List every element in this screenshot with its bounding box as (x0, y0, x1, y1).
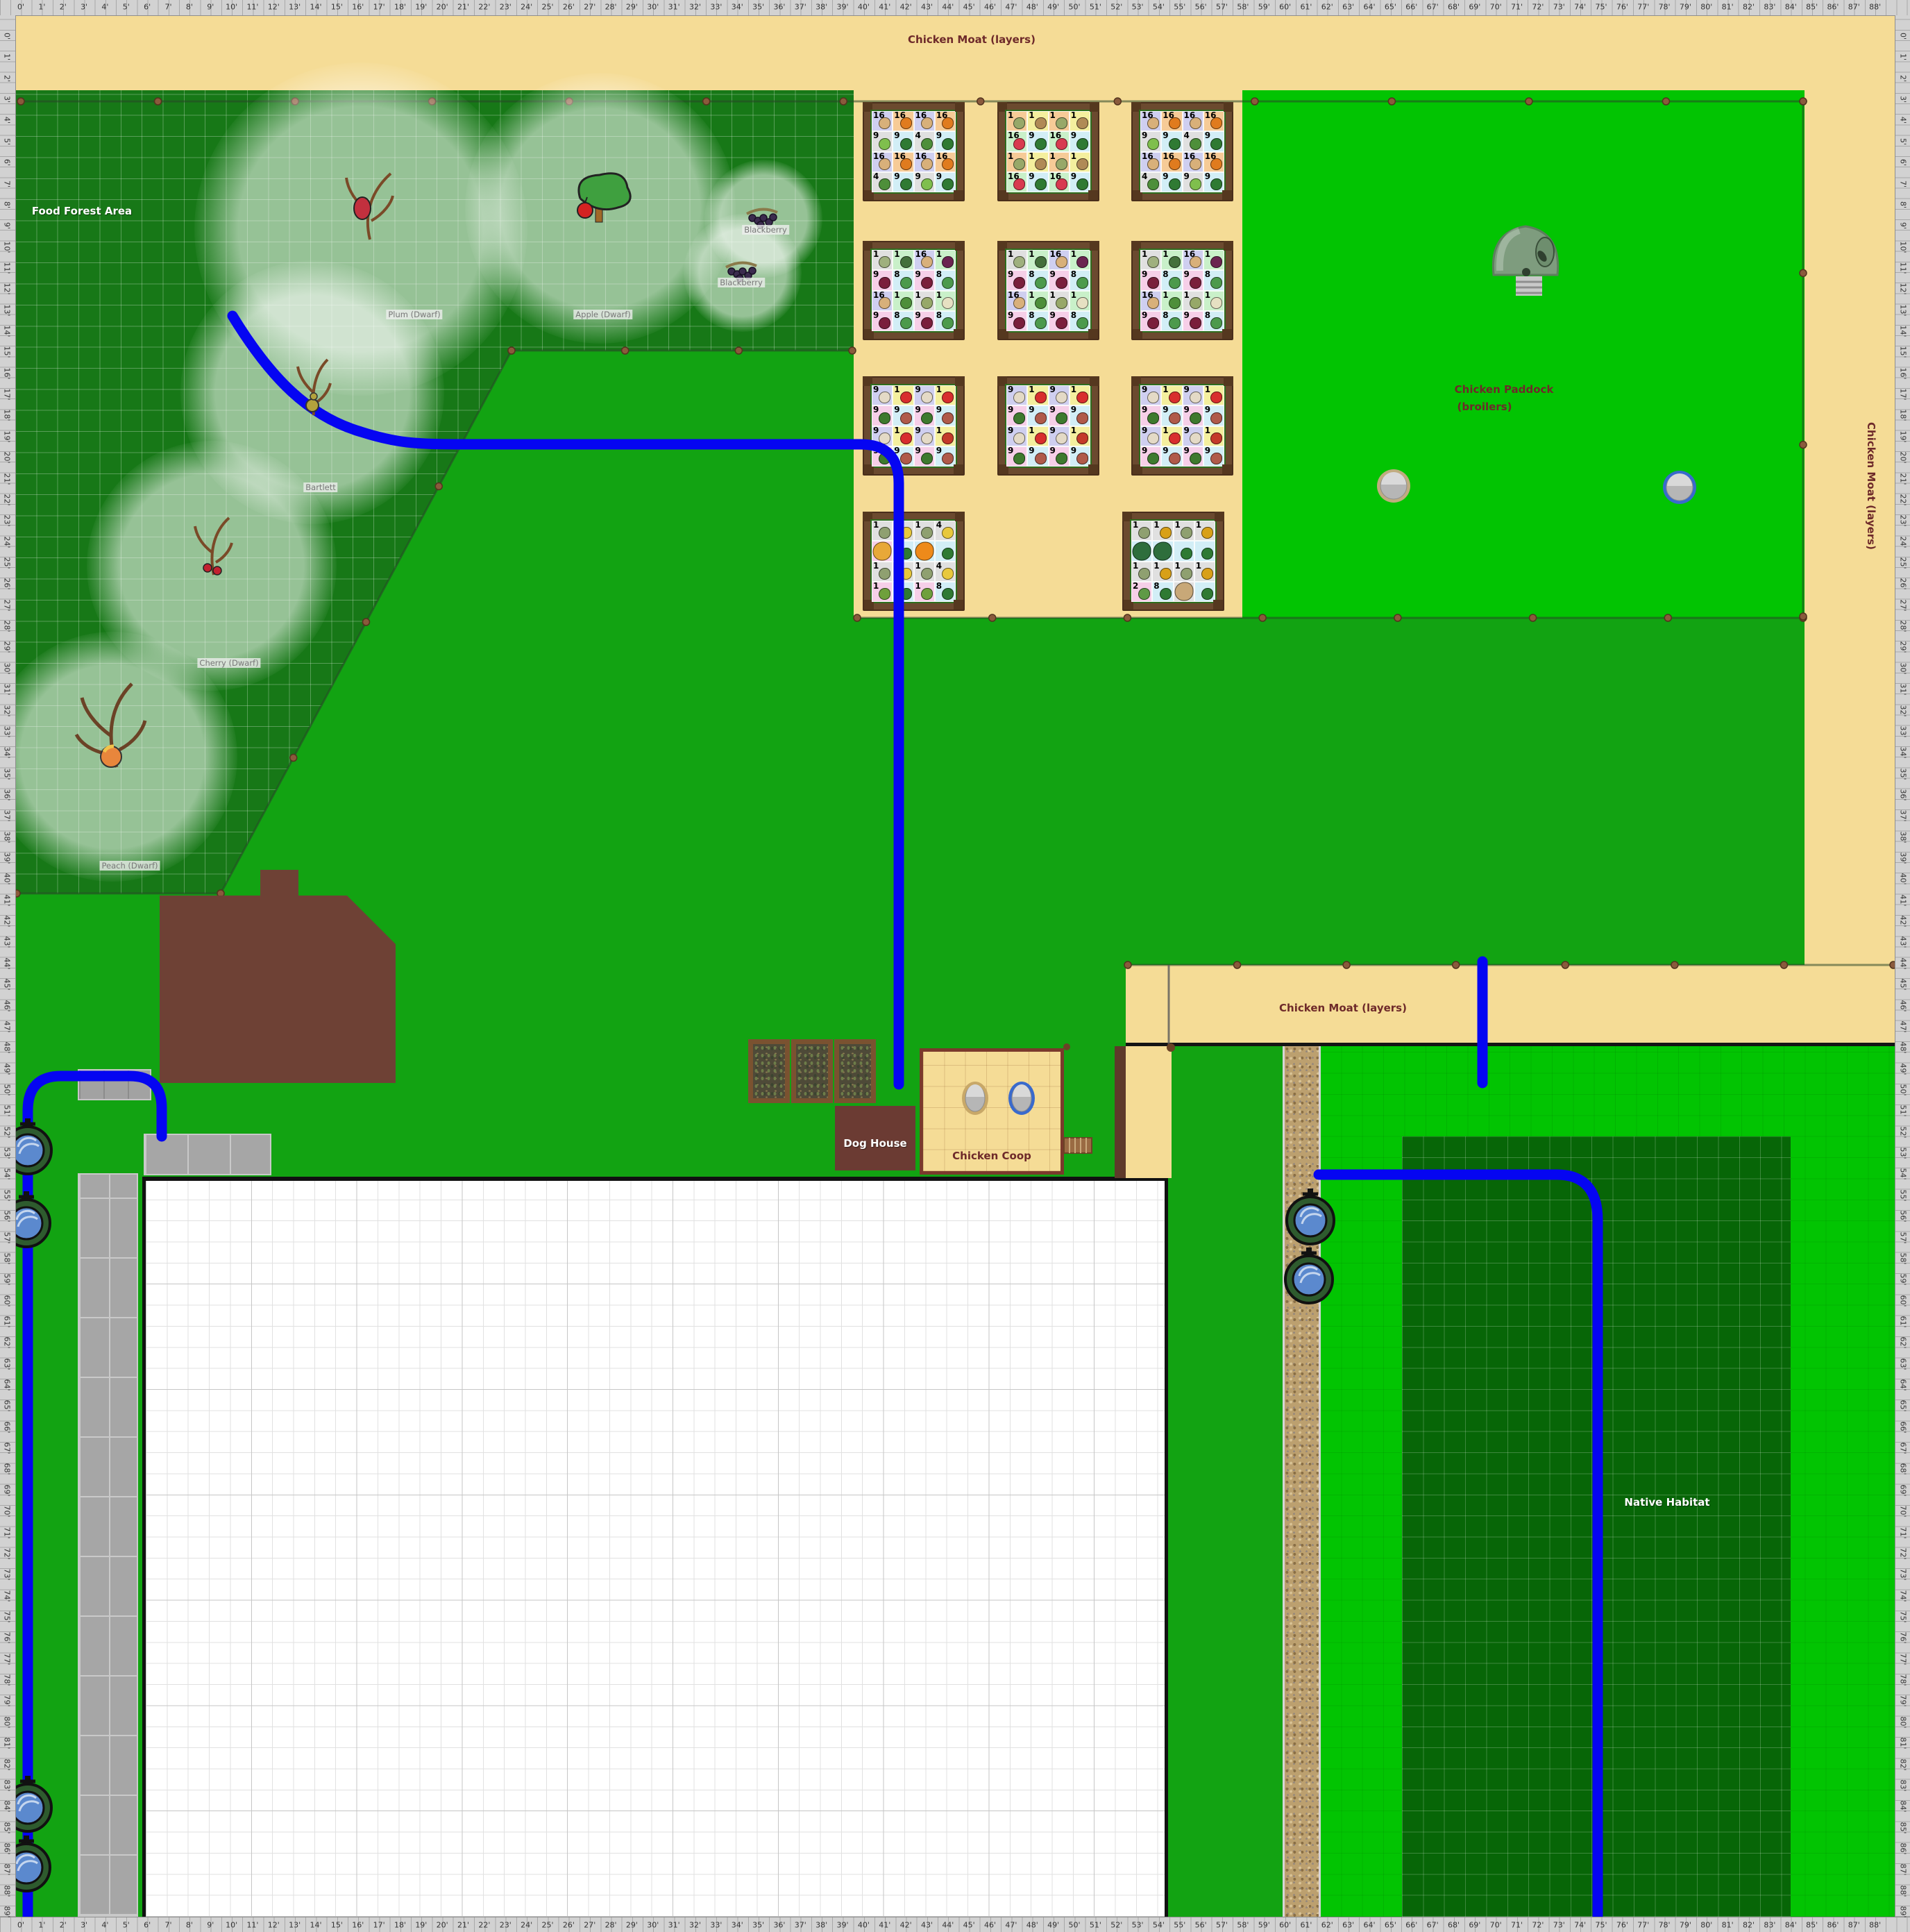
plum-tree-icon[interactable] (346, 174, 393, 240)
ruler-tick-label: 28' (605, 3, 617, 12)
ruler-tick-label: 30' (647, 3, 659, 12)
ruler-tick-label: 26' (3, 578, 12, 590)
ruler-tick-label: 13' (289, 1921, 301, 1930)
ruler-tick-label: 51' (1090, 3, 1101, 12)
ruler-tick-label: 25' (541, 3, 553, 12)
ruler-tick-label: 45' (3, 979, 12, 991)
ruler-tick-label: 9' (207, 1921, 214, 1930)
ruler-tick-label: 78' (3, 1674, 12, 1686)
ruler-tick-label: 3' (1899, 96, 1908, 103)
ruler-tick-label: 66' (3, 1421, 12, 1433)
ruler-tick-label: 54' (1899, 1168, 1908, 1180)
ruler-tick-label: 36' (773, 1921, 785, 1930)
ruler-tick-label: 61' (3, 1316, 12, 1327)
ruler-tick-label: 89' (3, 1906, 12, 1918)
ruler-right: 0'1'2'3'4'5'6'7'8'9'10'11'12'13'14'15'16… (1895, 15, 1910, 1917)
ruler-tick-label: 42' (900, 3, 912, 12)
ruler-tick-label: 41' (879, 1921, 890, 1930)
cherry-tree-icon[interactable] (195, 518, 232, 575)
ruler-tick-label: 49' (1047, 3, 1059, 12)
ruler-tick-label: 80' (3, 1716, 12, 1728)
ruler-tick-label: 27' (584, 1921, 595, 1930)
ruler-tick-label: 65' (1385, 3, 1396, 12)
garden-plan-canvas[interactable]: 1616161699491616161649991111169169111116… (0, 0, 1910, 1932)
ruler-tick-label: 65' (1385, 1921, 1396, 1930)
ruler-tick-label: 24' (521, 1921, 532, 1930)
ruler-tick-label: 47' (1899, 1020, 1908, 1032)
ruler-tick-label: 15' (331, 1921, 343, 1930)
ruler-tick-label: 53' (1899, 1148, 1908, 1159)
label-food-forest: Food Forest Area (32, 205, 132, 217)
ruler-tick-label: 60' (3, 1295, 12, 1307)
ruler-tick-label: 76' (1616, 3, 1628, 12)
ruler-tick-label: 73' (1553, 1921, 1565, 1930)
ruler-tick-label: 40' (1899, 873, 1908, 885)
ruler-tick-label: 85' (1806, 3, 1818, 12)
ruler-tick-label: 70' (3, 1506, 12, 1518)
ruler-tick-label: 18' (1899, 410, 1908, 421)
ruler-tick-label: 14' (310, 1921, 322, 1930)
ruler-tick-label: 52' (1110, 1921, 1122, 1930)
label-dog-house: Dog House (843, 1137, 906, 1150)
ruler-tick-label: 61' (1300, 3, 1312, 12)
ruler-tick-label: 37' (795, 1921, 806, 1930)
ruler-tick-label: 61' (1300, 1921, 1312, 1930)
ruler-tick-label: 4' (101, 3, 108, 12)
label-moat-right: Chicken Moat (layers) (1865, 422, 1877, 550)
ruler-tick-label: 81' (3, 1738, 12, 1749)
ruler-tick-label: 22' (1899, 494, 1908, 505)
label-moat-mid: Chicken Moat (layers) (1279, 1002, 1407, 1014)
ruler-tick-label: 43' (921, 1921, 933, 1930)
ruler-tick-label: 56' (1195, 1921, 1207, 1930)
ruler-tick-label: 72' (1899, 1547, 1908, 1559)
ruler-tick-label: 21' (3, 473, 12, 485)
ruler-tick-label: 89' (1899, 1906, 1908, 1918)
ruler-tick-label: 68' (1448, 1921, 1460, 1930)
ruler-tick-label: 50' (1899, 1084, 1908, 1095)
ruler-tick-label: 46' (1899, 1000, 1908, 1011)
ruler-tick-label: 55' (1174, 1921, 1185, 1930)
ruler-tick-label: 74' (1574, 1921, 1586, 1930)
ruler-tick-label: 6' (1899, 159, 1908, 166)
ruler-tick-label: 72' (1532, 3, 1544, 12)
ruler-tick-label: 77' (1637, 3, 1649, 12)
ruler-tick-label: 63' (1899, 1358, 1908, 1370)
apple-tree-icon[interactable] (577, 174, 630, 222)
ruler-tick-label: 64' (1364, 1921, 1376, 1930)
ruler-tick-label: 52' (3, 1126, 12, 1138)
rain-barrel-icon[interactable] (1287, 1188, 1334, 1244)
ruler-tick-label: 31' (3, 684, 12, 696)
ruler-tick-label: 82' (1743, 3, 1755, 12)
ruler-tick-label: 78' (1899, 1674, 1908, 1686)
ruler-tick-label: 24' (3, 536, 12, 548)
ruler-tick-label: 11' (1899, 262, 1908, 274)
ruler-tick-label: 6' (3, 159, 12, 166)
ruler-tick-label: 84' (3, 1801, 12, 1813)
ruler-tick-label: 8' (186, 1921, 193, 1930)
ruler-tick-label: 16' (352, 3, 364, 12)
ruler-tick-label: 19' (3, 430, 12, 442)
ruler-tick-label: 33' (710, 3, 722, 12)
chicken-feeder-icon[interactable] (1377, 469, 1410, 503)
ruler-tick-label: 45' (963, 3, 975, 12)
ruler-tick-label: 65' (3, 1400, 12, 1412)
ruler-tick-label: 41' (1899, 894, 1908, 906)
ruler-tick-label: 78' (1659, 3, 1671, 12)
ruler-tick-label: 49' (1047, 1921, 1059, 1930)
ruler-tick-label: 14' (310, 3, 322, 12)
ruler-tick-label: 79' (1680, 1921, 1691, 1930)
ruler-tick-label: 77' (1899, 1653, 1908, 1665)
ruler-tick-label: 80' (1899, 1716, 1908, 1728)
ruler-tick-label: 2' (1899, 75, 1908, 82)
label-blackberry1: Blackberry (742, 225, 789, 235)
ruler-tick-label: 33' (1899, 725, 1908, 737)
ruler-tick-label: 27' (3, 599, 12, 611)
ruler-tick-label: 35' (3, 768, 12, 780)
ruler-tick-label: 31' (668, 3, 680, 12)
ruler-tick-label: 85' (1806, 1921, 1818, 1930)
ruler-tick-label: 48' (1026, 3, 1038, 12)
ruler-tick-label: 41' (879, 3, 890, 12)
ruler-tick-label: 87' (3, 1864, 12, 1876)
ruler-tick-label: 49' (3, 1063, 12, 1075)
ruler-tick-label: 23' (500, 3, 512, 12)
ruler-tick-label: 40' (3, 873, 12, 885)
ruler-tick-label: 75' (1595, 1921, 1607, 1930)
ruler-tick-label: 43' (921, 3, 933, 12)
ruler-tick-label: 29' (3, 641, 12, 653)
label-paddock-l2: (broilers) (1457, 401, 1512, 413)
label-paddock-l1: Chicken Paddock (1455, 383, 1554, 396)
ruler-tick-label: 28' (3, 621, 12, 632)
ruler-tick-label: 84' (1899, 1801, 1908, 1813)
ruler-tick-label: 35' (752, 1921, 764, 1930)
ruler-tick-label: 17' (3, 389, 12, 401)
ruler-tick-label: 84' (1785, 3, 1797, 12)
ruler-tick-label: 1' (3, 53, 12, 60)
label-plum: Plum (Dwarf) (386, 310, 442, 319)
ruler-tick-label: 6' (144, 1921, 151, 1930)
ruler-tick-label: 51' (1090, 1921, 1101, 1930)
ruler-tick-label: 31' (1899, 684, 1908, 696)
ruler-tick-label: 11' (246, 3, 258, 12)
irrigation-pipe[interactable] (28, 316, 1598, 1923)
ruler-tick-label: 39' (837, 3, 849, 12)
chicken-feeder-icon[interactable] (1008, 1082, 1035, 1115)
ruler-tick-label: 83' (3, 1779, 12, 1791)
ruler-tick-label: 88' (3, 1885, 12, 1897)
ruler-tick-label: 30' (647, 1921, 659, 1930)
ruler-tick-label: 58' (3, 1252, 12, 1264)
ruler-tick-label: 6' (144, 3, 151, 12)
ruler-tick-label: 17' (1899, 389, 1908, 401)
ruler-tick-label: 46' (984, 3, 996, 12)
ruler-tick-label: 22' (478, 1921, 490, 1930)
ruler-tick-label: 5' (3, 138, 12, 145)
ruler-tick-label: 83' (1764, 3, 1775, 12)
ruler-tick-label: 59' (1258, 1921, 1270, 1930)
ruler-tick-label: 9' (3, 222, 12, 229)
ruler-tick-label: 48' (1026, 1921, 1038, 1930)
chicken-feeder-icon[interactable] (962, 1082, 988, 1115)
ruler-tick-label: 71' (1899, 1527, 1908, 1538)
ruler-tick-label: 13' (289, 3, 301, 12)
ruler-tick-label: 40' (858, 3, 870, 12)
ruler-tick-label: 15' (331, 3, 343, 12)
ruler-tick-label: 73' (1899, 1569, 1908, 1581)
ruler-tick-label: 63' (1342, 1921, 1354, 1930)
ruler-tick-label: 51' (3, 1105, 12, 1117)
ruler-tick-label: 38' (815, 3, 827, 12)
ruler-tick-label: 73' (1553, 3, 1565, 12)
ruler-tick-label: 77' (3, 1653, 12, 1665)
ruler-tick-label: 78' (1659, 1921, 1671, 1930)
ruler-tick-label: 81' (1899, 1738, 1908, 1749)
ruler-tick-label: 26' (563, 1921, 575, 1930)
ruler-tick-label: 69' (3, 1484, 12, 1496)
ruler-bottom: 0'1'2'3'4'5'6'7'8'9'10'11'12'13'14'15'16… (0, 1917, 1910, 1932)
ruler-tick-label: 17' (373, 1921, 385, 1930)
ruler-tick-label: 71' (3, 1527, 12, 1538)
ruler-tick-label: 50' (1068, 3, 1080, 12)
ruler-tick-label: 1' (38, 1921, 45, 1930)
ruler-tick-label: 37' (3, 810, 12, 822)
ruler-tick-label: 87' (1848, 3, 1860, 12)
ruler-tick-label: 41' (3, 894, 12, 906)
ruler-tick-label: 4' (1899, 117, 1908, 124)
ruler-tick-label: 85' (1899, 1822, 1908, 1833)
ruler-tick-label: 47' (1005, 1921, 1017, 1930)
ruler-tick-label: 76' (1616, 1921, 1628, 1930)
ruler-tick-label: 44' (942, 3, 954, 12)
ruler-tick-label: 23' (1899, 515, 1908, 527)
ruler-tick-label: 21' (457, 3, 469, 12)
ruler-tick-label: 43' (3, 936, 12, 948)
ruler-tick-label: 29' (1899, 641, 1908, 653)
ruler-tick-label: 67' (1427, 3, 1439, 12)
ruler-tick-label: 64' (1899, 1379, 1908, 1391)
ruler-tick-label: 72' (1532, 1921, 1544, 1930)
rain-barrel-icon[interactable] (1285, 1248, 1333, 1303)
ruler-tick-label: 83' (1899, 1779, 1908, 1791)
ruler-tick-label: 17' (373, 3, 385, 12)
ruler-tick-label: 34' (732, 3, 743, 12)
ruler-tick-label: 64' (3, 1379, 12, 1391)
ruler-tick-label: 0' (3, 33, 12, 40)
label-cherry: Cherry (Dwarf) (197, 658, 260, 668)
ruler-tick-label: 35' (752, 3, 764, 12)
ruler-tick-label: 32' (689, 3, 701, 12)
ruler-tick-label: 52' (1110, 3, 1122, 12)
ruler-tick-label: 47' (1005, 3, 1017, 12)
ruler-tick-label: 57' (3, 1232, 12, 1243)
chicken-tractor-icon[interactable] (1493, 226, 1557, 296)
ruler-tick-label: 80' (1700, 3, 1712, 12)
ruler-tick-label: 8' (3, 201, 12, 208)
ruler-tick-label: 18' (394, 1921, 406, 1930)
ruler-tick-label: 10' (3, 241, 12, 253)
ruler-tick-label: 70' (1490, 3, 1502, 12)
ruler-tick-label: 62' (3, 1337, 12, 1349)
ruler-tick-label: 18' (394, 3, 406, 12)
ruler-tick-label: 22' (478, 3, 490, 12)
ruler-tick-label: 69' (1469, 3, 1480, 12)
ruler-tick-label: 48' (1899, 1042, 1908, 1054)
ruler-tick-label: 55' (1899, 1189, 1908, 1201)
ruler-tick-label: 74' (3, 1590, 12, 1602)
coop-ramp-icon[interactable] (1064, 1138, 1092, 1153)
ruler-tick-label: 39' (837, 1921, 849, 1930)
ruler-tick-label: 7' (165, 1921, 172, 1930)
ruler-tick-label: 18' (3, 410, 12, 421)
ruler-tick-label: 38' (3, 831, 12, 843)
ruler-tick-label: 59' (1899, 1274, 1908, 1286)
ruler-tick-label: 59' (1258, 3, 1270, 12)
ruler-tick-label: 16' (352, 1921, 364, 1930)
ruler-tick-label: 31' (668, 1921, 680, 1930)
ruler-tick-label: 42' (3, 916, 12, 927)
ruler-tick-label: 12' (268, 3, 280, 12)
ruler-tick-label: 71' (1511, 3, 1523, 12)
ruler-tick-label: 25' (541, 1921, 553, 1930)
ruler-tick-label: 34' (1899, 747, 1908, 759)
ruler-tick-label: 59' (3, 1274, 12, 1286)
ruler-tick-label: 81' (1722, 3, 1734, 12)
chicken-feeder-icon[interactable] (1663, 471, 1696, 504)
ruler-tick-label: 56' (3, 1211, 12, 1223)
ruler-tick-label: 44' (1899, 957, 1908, 969)
ruler-tick-label: 8' (186, 3, 193, 12)
ruler-tick-label: 15' (3, 346, 12, 358)
ruler-tick-label: 88' (1869, 1921, 1881, 1930)
ruler-tick-label: 45' (1899, 979, 1908, 991)
ruler-tick-label: 19' (415, 1921, 427, 1930)
ruler-top: 0'1'2'3'4'5'6'7'8'9'10'11'12'13'14'15'16… (0, 0, 1910, 16)
ruler-tick-label: 54' (1153, 3, 1165, 12)
ruler-left: 0'1'2'3'4'5'6'7'8'9'10'11'12'13'14'15'16… (0, 15, 16, 1917)
ruler-tick-label: 11' (3, 262, 12, 274)
ruler-tick-label: 72' (3, 1547, 12, 1559)
ruler-tick-label: 10' (1899, 241, 1908, 253)
ruler-tick-label: 27' (1899, 599, 1908, 611)
ruler-tick-label: 25' (1899, 557, 1908, 569)
ruler-tick-label: 85' (3, 1822, 12, 1833)
ruler-tick-label: 26' (563, 3, 575, 12)
ruler-tick-label: 16' (1899, 367, 1908, 379)
ruler-tick-label: 79' (3, 1695, 12, 1707)
ruler-tick-label: 53' (1132, 1921, 1144, 1930)
label-blackberry2: Blackberry (718, 278, 765, 287)
ruler-tick-label: 54' (3, 1168, 12, 1180)
ruler-tick-label: 15' (1899, 346, 1908, 358)
ruler-tick-label: 7' (3, 180, 12, 187)
ruler-tick-label: 35' (1899, 768, 1908, 780)
ruler-tick-label: 86' (1827, 1921, 1839, 1930)
ruler-tick-label: 58' (1237, 3, 1249, 12)
ruler-tick-label: 20' (437, 1921, 448, 1930)
ruler-tick-label: 44' (3, 957, 12, 969)
label-moat-top: Chicken Moat (layers) (908, 33, 1036, 46)
ruler-tick-label: 12' (3, 283, 12, 295)
ruler-tick-label: 34' (3, 747, 12, 759)
ruler-tick-label: 66' (1405, 3, 1417, 12)
ruler-tick-label: 37' (1899, 810, 1908, 822)
peach-tree-icon[interactable] (76, 684, 145, 767)
ruler-tick-label: 47' (3, 1020, 12, 1032)
ruler-tick-label: 3' (81, 3, 87, 12)
ruler-tick-label: 34' (732, 1921, 743, 1930)
ruler-tick-label: 27' (584, 3, 595, 12)
ruler-tick-label: 83' (1764, 1921, 1775, 1930)
ruler-tick-label: 68' (3, 1463, 12, 1475)
ruler-tick-label: 42' (900, 1921, 912, 1930)
ruler-tick-label: 63' (1342, 3, 1354, 12)
ruler-tick-label: 76' (3, 1632, 12, 1644)
ruler-tick-label: 30' (1899, 662, 1908, 674)
ruler-tick-label: 82' (1743, 1921, 1755, 1930)
ruler-tick-label: 40' (858, 1921, 870, 1930)
ruler-tick-label: 3' (3, 96, 12, 103)
ruler-tick-label: 14' (3, 326, 12, 337)
ruler-tick-label: 36' (3, 789, 12, 800)
ruler-tick-label: 62' (1899, 1337, 1908, 1349)
label-apple: Apple (Dwarf) (573, 310, 632, 319)
ruler-tick-label: 46' (3, 1000, 12, 1011)
ruler-tick-label: 28' (605, 1921, 617, 1930)
ruler-tick-label: 13' (1899, 304, 1908, 316)
ruler-tick-label: 5' (1899, 138, 1908, 145)
ruler-tick-label: 13' (3, 304, 12, 316)
ruler-tick-label: 61' (1899, 1316, 1908, 1327)
ruler-tick-label: 75' (1899, 1611, 1908, 1622)
ruler-tick-label: 67' (1427, 1921, 1439, 1930)
ruler-tick-label: 76' (1899, 1632, 1908, 1644)
ruler-tick-label: 1' (1899, 53, 1908, 60)
ruler-tick-label: 23' (3, 515, 12, 527)
ruler-tick-label: 79' (1680, 3, 1691, 12)
ruler-tick-label: 32' (689, 1921, 701, 1930)
ruler-tick-label: 49' (1899, 1063, 1908, 1075)
ruler-tick-label: 2' (3, 75, 12, 82)
ruler-tick-label: 70' (1899, 1506, 1908, 1518)
ruler-tick-label: 75' (1595, 3, 1607, 12)
ruler-tick-label: 43' (1899, 936, 1908, 948)
ruler-tick-label: 28' (1899, 621, 1908, 632)
ruler-tick-label: 14' (1899, 326, 1908, 337)
ruler-tick-label: 38' (815, 1921, 827, 1930)
ruler-tick-label: 19' (1899, 430, 1908, 442)
ruler-tick-label: 20' (1899, 452, 1908, 464)
ruler-tick-label: 50' (1068, 1921, 1080, 1930)
ruler-tick-label: 10' (226, 1921, 237, 1930)
ruler-tick-label: 45' (963, 1921, 975, 1930)
ruler-tick-label: 65' (1899, 1400, 1908, 1412)
label-coop: Chicken Coop (952, 1150, 1031, 1162)
ruler-tick-label: 5' (123, 1921, 130, 1930)
ruler-tick-label: 67' (3, 1443, 12, 1454)
ruler-tick-label: 86' (1827, 3, 1839, 12)
ruler-tick-label: 46' (984, 1921, 996, 1930)
ruler-tick-label: 73' (3, 1569, 12, 1581)
ruler-tick-label: 86' (3, 1842, 12, 1854)
ruler-tick-label: 56' (1195, 3, 1207, 12)
ruler-tick-label: 20' (437, 3, 448, 12)
ruler-tick-label: 53' (1132, 3, 1144, 12)
ruler-tick-label: 66' (1899, 1421, 1908, 1433)
